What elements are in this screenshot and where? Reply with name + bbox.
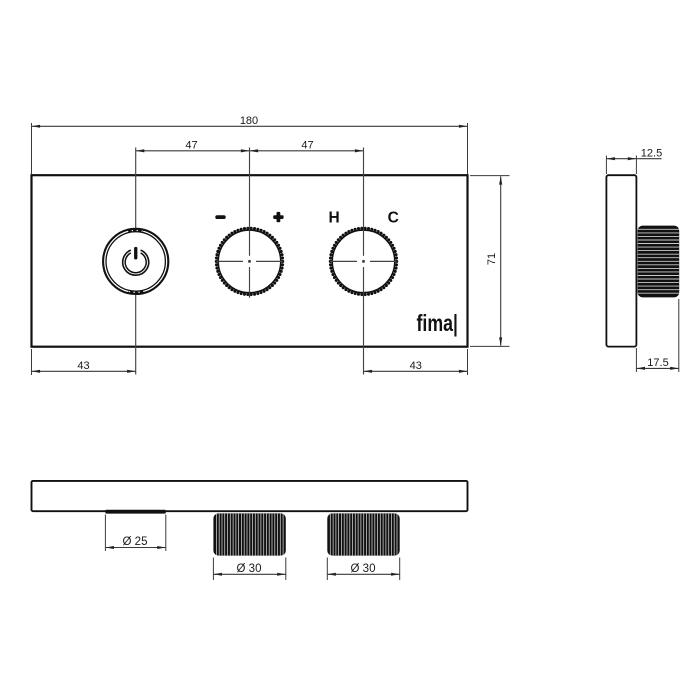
svg-text:C: C	[388, 209, 399, 226]
svg-text:71: 71	[486, 253, 498, 265]
svg-text:180: 180	[240, 115, 258, 127]
svg-text:47: 47	[185, 140, 197, 152]
svg-text:17.5: 17.5	[647, 357, 668, 369]
svg-text:Ø 30: Ø 30	[237, 563, 262, 575]
svg-text:H: H	[328, 209, 339, 226]
svg-text:fima: fima	[417, 310, 454, 336]
svg-text:43: 43	[410, 360, 422, 372]
svg-text:Ø 25: Ø 25	[123, 536, 148, 548]
svg-text:12.5: 12.5	[641, 147, 662, 159]
svg-text:43: 43	[77, 360, 89, 372]
svg-text:Ø 30: Ø 30	[351, 563, 376, 575]
svg-text:47: 47	[301, 140, 313, 152]
